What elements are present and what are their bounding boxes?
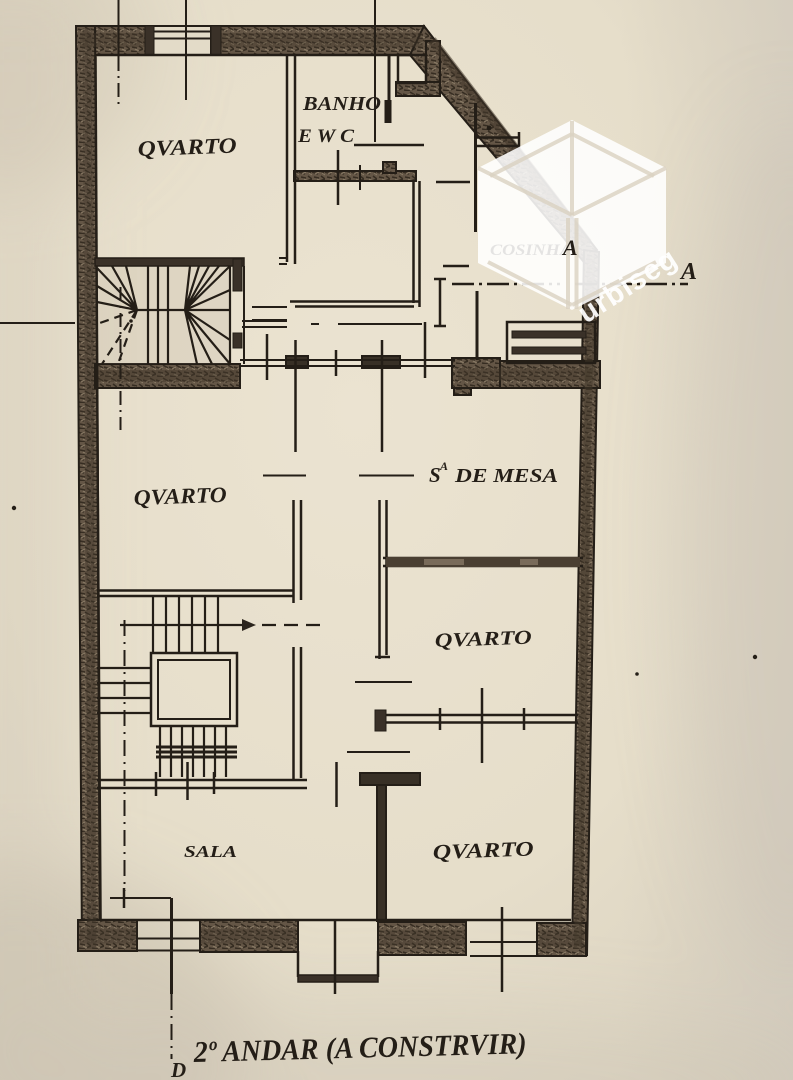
svg-text:QVARTO: QVARTO — [133, 482, 227, 510]
svg-text:SALA: SALA — [184, 842, 237, 861]
svg-text:DE MESA: DE MESA — [454, 465, 558, 487]
svg-text:S: S — [429, 463, 441, 487]
svg-text:QVARTO: QVARTO — [434, 627, 532, 652]
svg-text:A: A — [679, 259, 697, 285]
svg-text:D: D — [170, 1058, 186, 1080]
svg-text:BANHO: BANHO — [302, 93, 381, 115]
svg-text:QVARTO: QVARTO — [432, 836, 534, 864]
svg-text:QVARTO: QVARTO — [137, 133, 237, 161]
svg-text:A: A — [561, 235, 578, 260]
svg-text:E W C: E W C — [297, 126, 354, 147]
svg-text:A: A — [439, 459, 448, 473]
